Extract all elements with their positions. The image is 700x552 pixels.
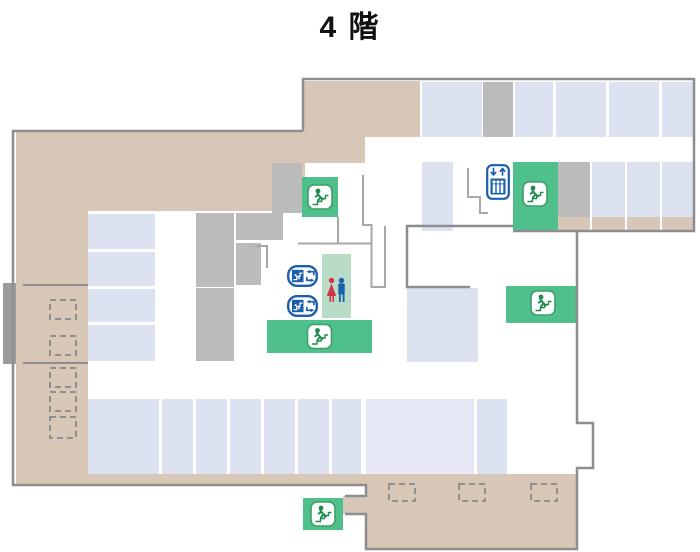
wall: [363, 175, 385, 287]
gray-block: [196, 213, 234, 287]
room: [477, 399, 507, 474]
restroom-zone: [322, 254, 351, 318]
gray-block: [196, 288, 234, 361]
stairs-icon: [531, 291, 555, 315]
stairs-icon: [308, 325, 332, 349]
tan-strip-room: [558, 217, 590, 231]
room: [88, 252, 155, 286]
room: [627, 162, 660, 217]
room-large: [366, 399, 474, 474]
room: [515, 82, 553, 137]
stairs-icon: [523, 182, 547, 206]
room: [196, 399, 227, 474]
room: [332, 399, 361, 474]
elevator-icon: [487, 165, 509, 199]
gray-block: [236, 213, 283, 240]
room: [609, 82, 659, 137]
floor-plan: [0, 0, 700, 552]
room: [422, 162, 453, 231]
room: [407, 288, 478, 362]
room: [230, 399, 261, 474]
tan-strip-room: [662, 217, 693, 231]
gray-block: [272, 163, 302, 213]
gray-block: [558, 162, 590, 217]
tan-strip-room: [627, 217, 660, 231]
room: [422, 82, 482, 137]
room: [298, 399, 329, 474]
escalator-icon: [288, 296, 317, 316]
wall-large-room: [407, 226, 513, 287]
tan-connector-tab: [343, 496, 369, 514]
room: [162, 399, 193, 474]
escalator-icon: [288, 266, 317, 286]
gray-block: [236, 243, 261, 285]
stairs-icon: [308, 185, 332, 209]
room: [662, 82, 693, 137]
room: [662, 162, 693, 217]
tan-area-top-wing: [303, 81, 420, 137]
floor-map-page: 4 階: [0, 0, 700, 552]
room: [88, 325, 155, 361]
room: [592, 162, 625, 217]
room: [264, 399, 295, 474]
stairs-icon: [311, 502, 335, 526]
room: [556, 82, 606, 137]
room: [88, 214, 155, 249]
tan-strip-room: [592, 217, 625, 231]
room: [88, 399, 159, 474]
room: [88, 289, 155, 322]
wall-stair-steps: [468, 168, 488, 213]
tan-area-bottom-right: [367, 477, 577, 549]
tan-area-left-column: [16, 211, 88, 485]
gray-block: [483, 82, 513, 137]
